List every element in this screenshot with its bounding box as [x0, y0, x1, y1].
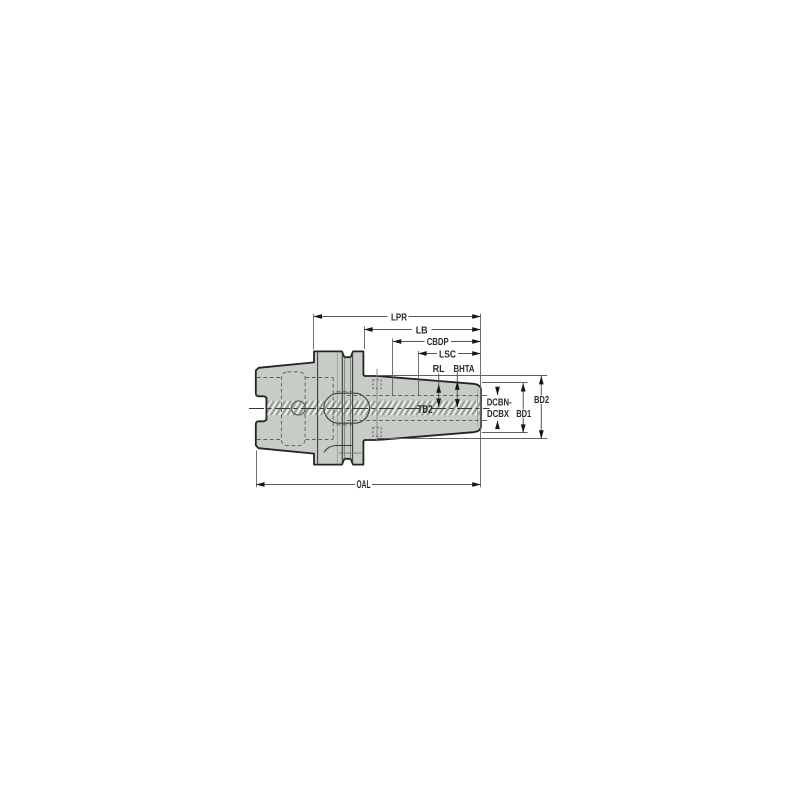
svg-text:BD2: BD2: [534, 395, 549, 406]
svg-text:DCBX: DCBX: [487, 409, 509, 420]
svg-text:OAL: OAL: [357, 479, 371, 491]
svg-text:DCBN-: DCBN-: [487, 398, 512, 409]
svg-text:RL: RL: [433, 364, 445, 375]
svg-text:CBDP: CBDP: [427, 337, 449, 348]
svg-text:BHTA: BHTA: [454, 364, 475, 375]
svg-text:LB: LB: [416, 325, 428, 336]
svg-text:LPR: LPR: [391, 313, 408, 324]
svg-text:TD2: TD2: [418, 404, 433, 416]
svg-text:LSC: LSC: [439, 350, 457, 361]
svg-text:BD1: BD1: [516, 409, 531, 420]
